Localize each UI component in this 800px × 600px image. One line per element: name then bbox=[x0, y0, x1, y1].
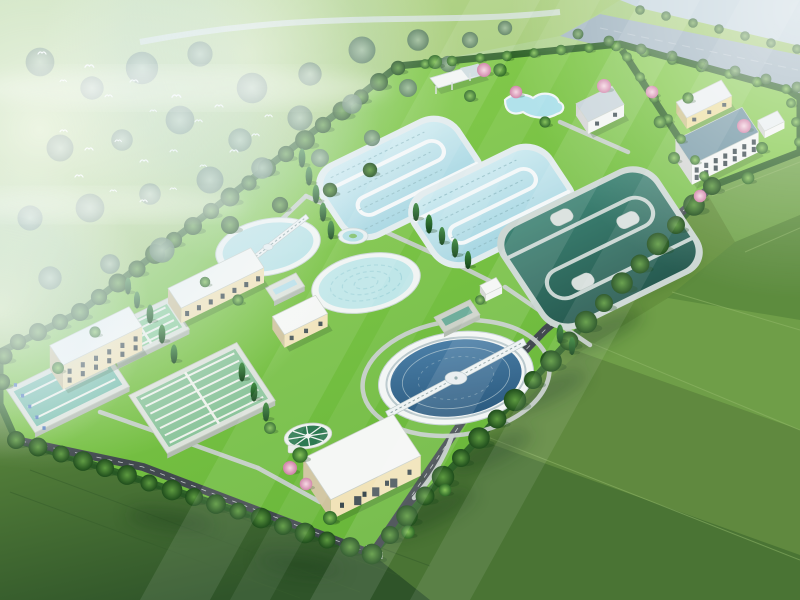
garage-door bbox=[354, 496, 361, 505]
treatment-plant-rendering bbox=[0, 0, 800, 600]
window bbox=[340, 503, 344, 508]
rendering-canvas bbox=[0, 0, 800, 600]
window bbox=[363, 492, 367, 497]
